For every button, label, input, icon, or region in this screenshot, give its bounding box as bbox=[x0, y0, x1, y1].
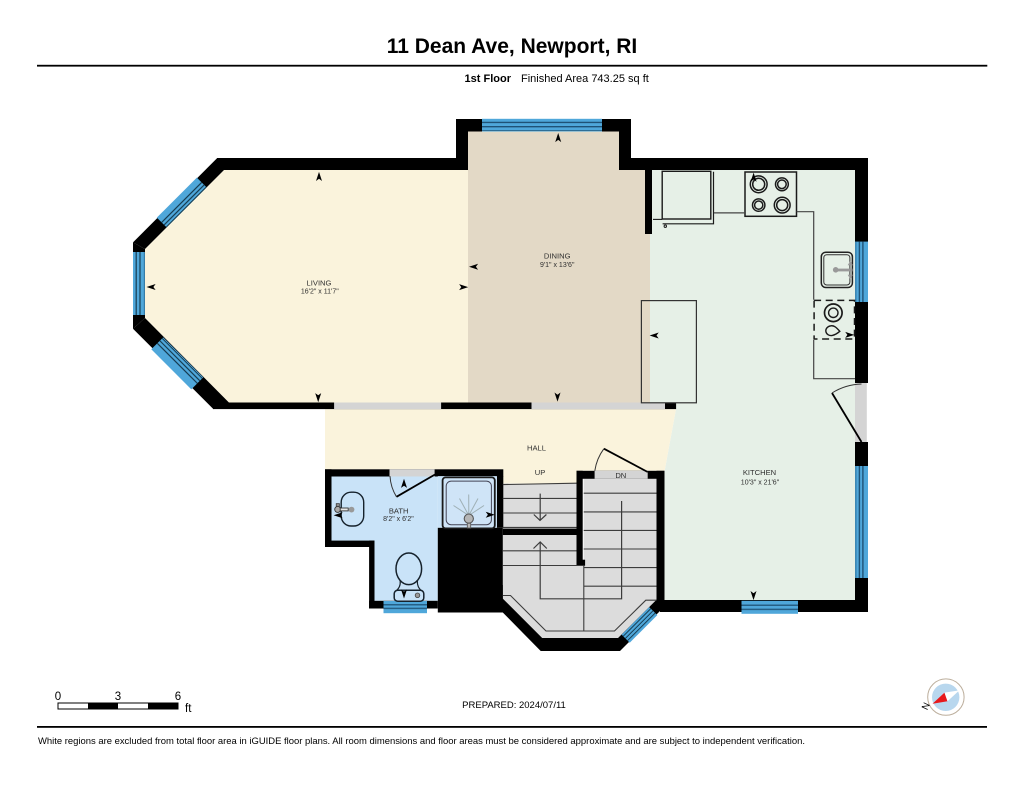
svg-text:10'3" x 21'6": 10'3" x 21'6" bbox=[741, 480, 780, 487]
svg-text:6: 6 bbox=[175, 691, 181, 703]
svg-text:DN: DN bbox=[615, 471, 626, 480]
svg-text:PREPARED: 2024/07/11: PREPARED: 2024/07/11 bbox=[462, 700, 566, 711]
svg-text:0: 0 bbox=[55, 691, 61, 703]
svg-text:3: 3 bbox=[115, 691, 121, 703]
svg-text:HALL: HALL bbox=[527, 443, 546, 452]
svg-text:KITCHEN: KITCHEN bbox=[743, 468, 776, 477]
svg-text:8'2" x 6'2": 8'2" x 6'2" bbox=[383, 516, 414, 523]
svg-text:Finished Area 743.25 sq ft: Finished Area 743.25 sq ft bbox=[521, 73, 649, 85]
svg-text:BATH: BATH bbox=[389, 506, 409, 515]
svg-text:16'2" x 11'7": 16'2" x 11'7" bbox=[301, 289, 339, 296]
svg-text:DINING: DINING bbox=[544, 251, 571, 260]
svg-text:1st Floor: 1st Floor bbox=[465, 73, 512, 85]
svg-text:9'1" x 13'6": 9'1" x 13'6" bbox=[540, 262, 575, 269]
svg-text:11 Dean Ave, Newport, RI: 11 Dean Ave, Newport, RI bbox=[387, 35, 638, 58]
svg-text:UP: UP bbox=[535, 468, 546, 477]
svg-text:ft: ft bbox=[185, 703, 192, 715]
svg-text:LIVING: LIVING bbox=[307, 279, 332, 288]
svg-text:White regions are excluded fro: White regions are excluded from total fl… bbox=[38, 736, 805, 747]
